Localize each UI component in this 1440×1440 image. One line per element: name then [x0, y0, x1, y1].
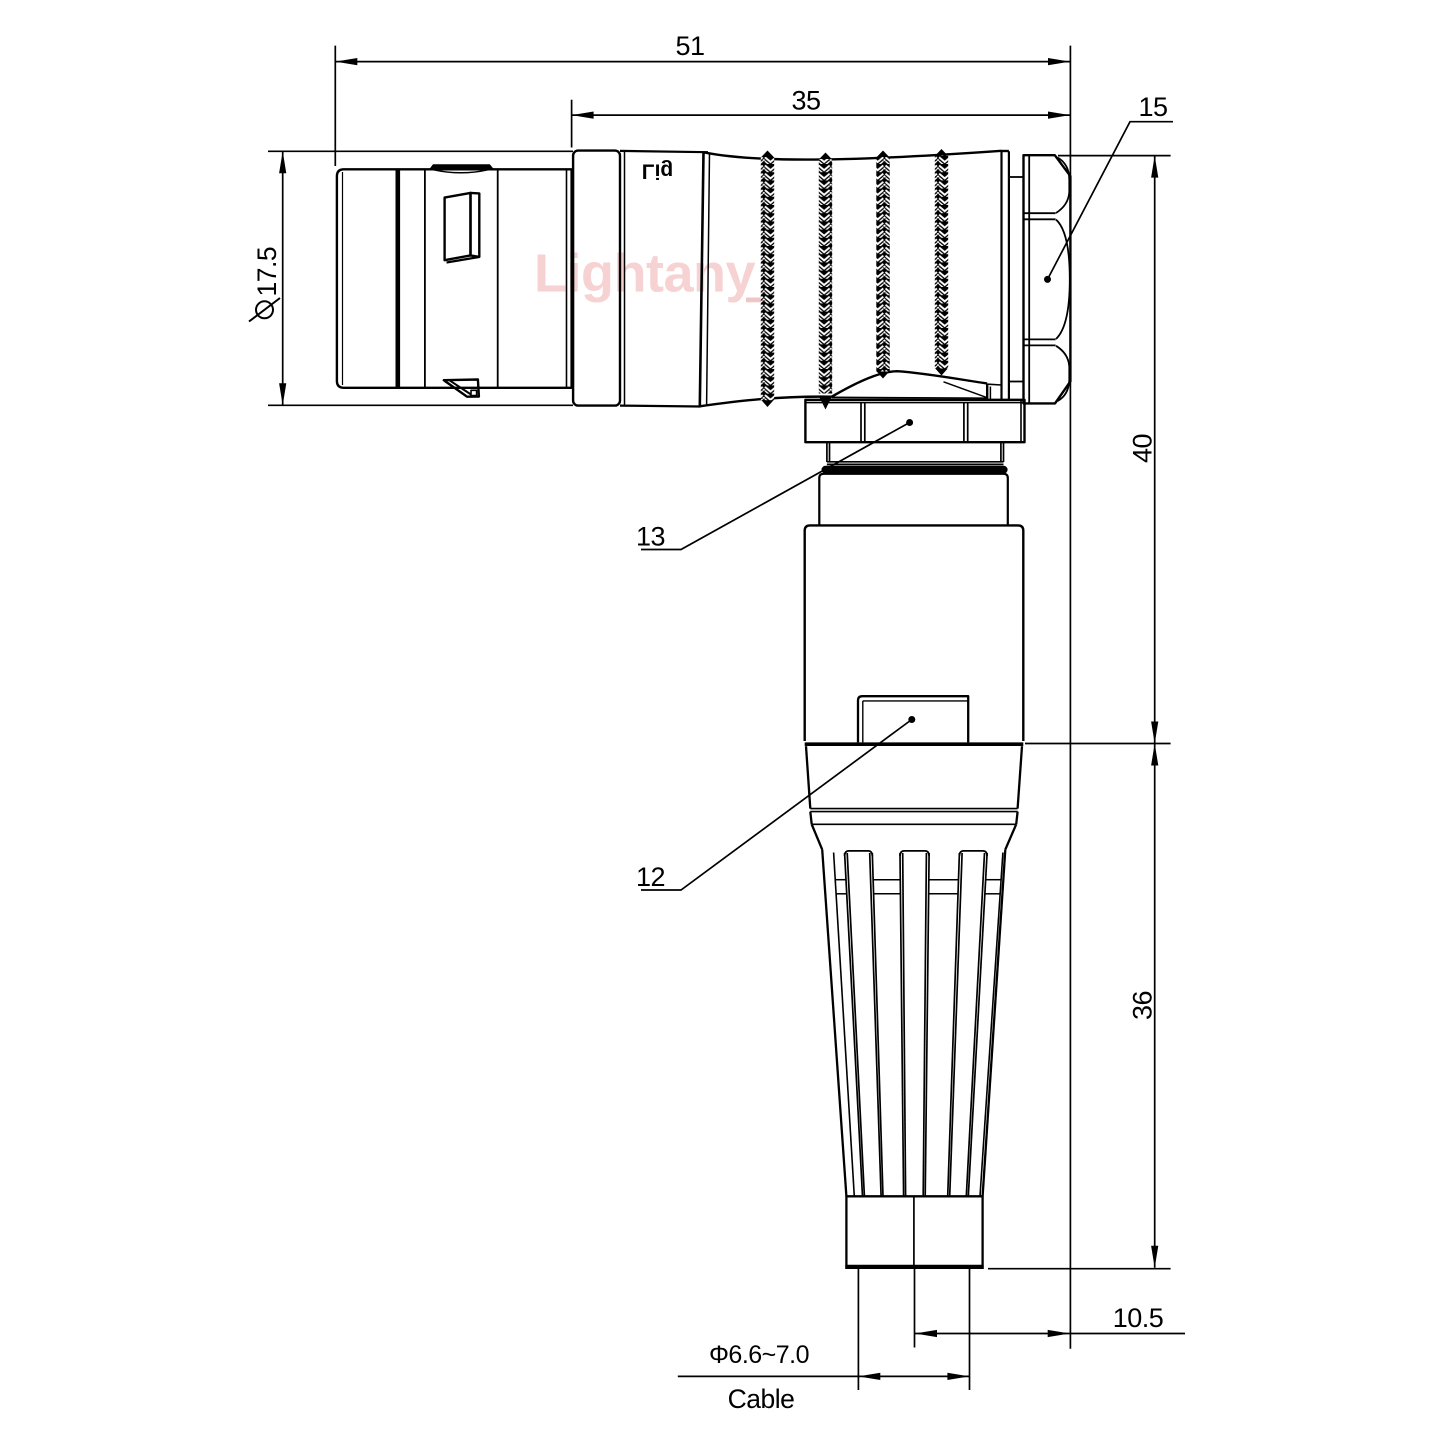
- svg-text:12: 12: [636, 862, 665, 892]
- svg-text:13: 13: [636, 522, 665, 552]
- svg-text:40: 40: [1128, 434, 1158, 463]
- svg-text:36: 36: [1128, 991, 1158, 1020]
- svg-text:10.5: 10.5: [1113, 1303, 1164, 1333]
- svg-text:15: 15: [1138, 92, 1167, 122]
- svg-text:35: 35: [791, 86, 820, 116]
- svg-text:Lig: Lig: [642, 160, 674, 183]
- svg-text:17.5: 17.5: [252, 247, 282, 297]
- svg-text:Φ6.6~7.0: Φ6.6~7.0: [709, 1341, 809, 1369]
- svg-text:Cable: Cable: [728, 1384, 795, 1414]
- svg-text:51: 51: [675, 31, 704, 61]
